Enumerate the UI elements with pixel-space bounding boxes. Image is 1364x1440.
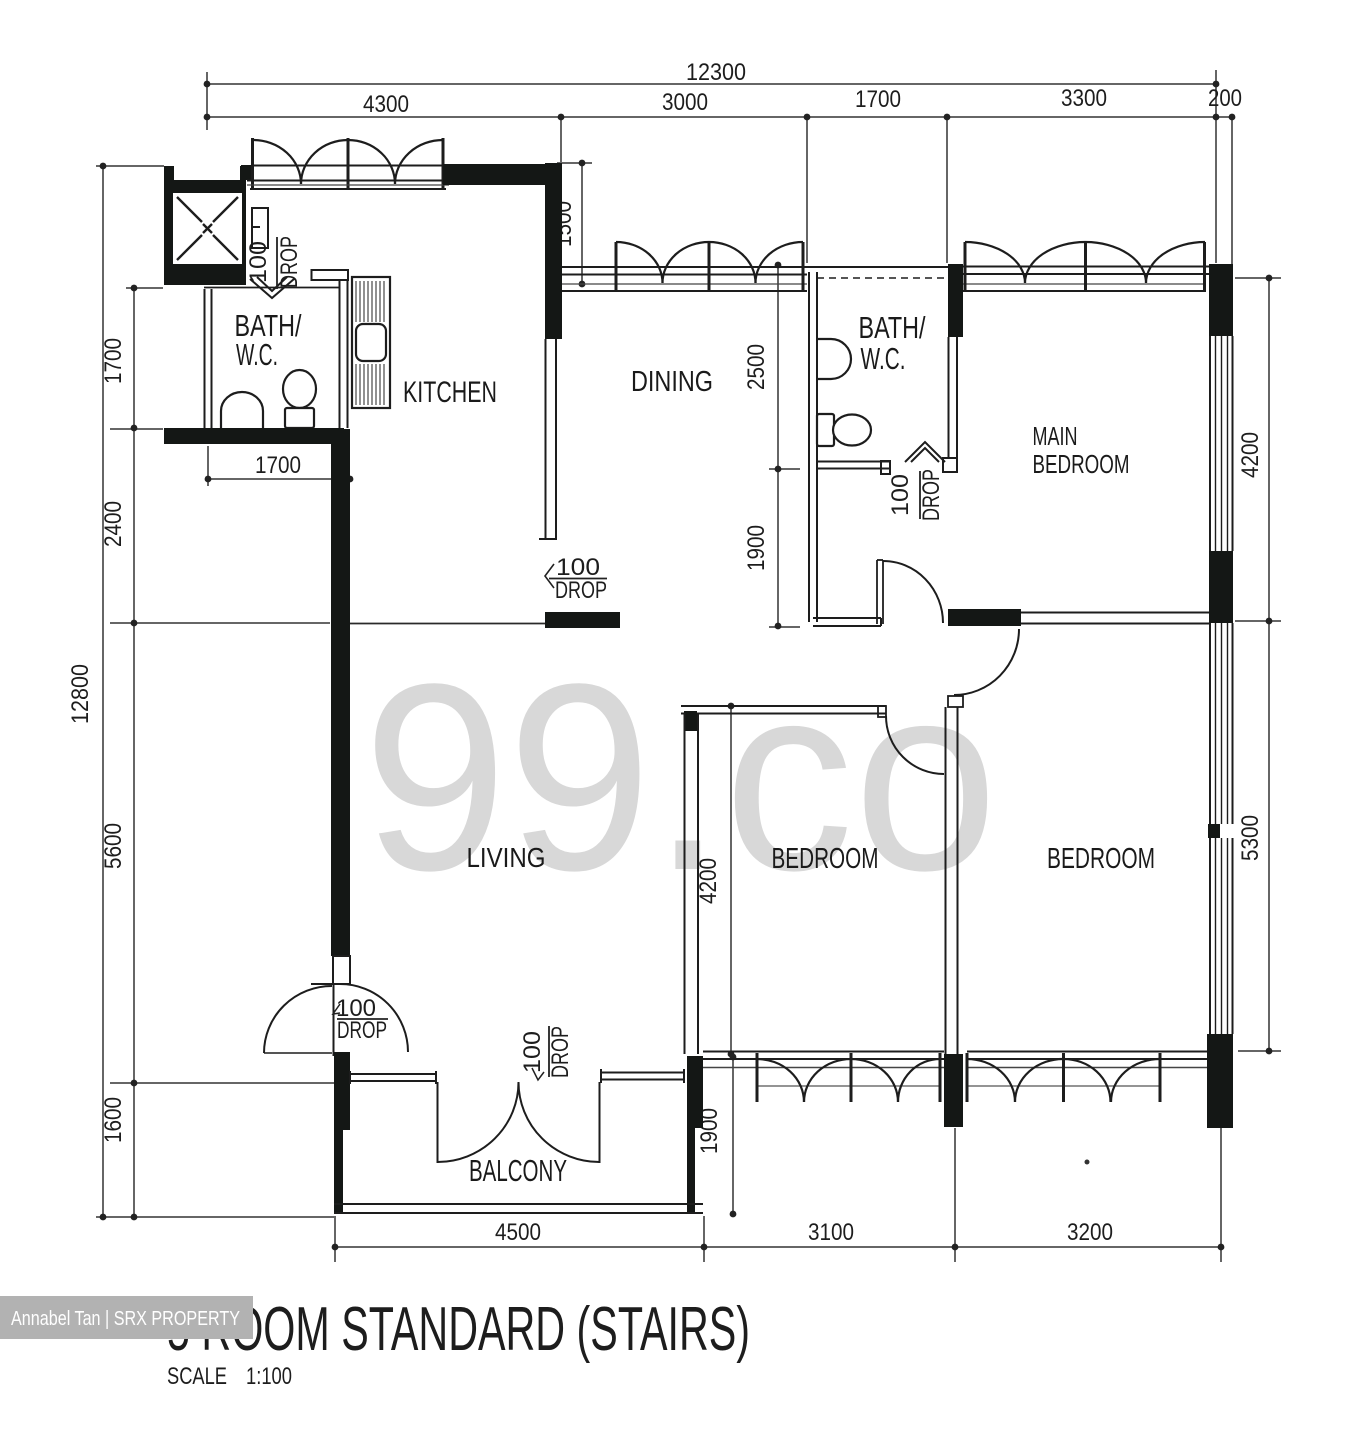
svg-text:100: 100 (887, 474, 914, 516)
svg-text:DROP: DROP (555, 577, 607, 604)
svg-text:1700: 1700 (855, 86, 901, 113)
svg-text:BEDROOM: BEDROOM (1047, 843, 1155, 875)
svg-text:99.co: 99.co (363, 629, 998, 926)
svg-text:1700: 1700 (100, 338, 127, 384)
svg-text:DROP: DROP (337, 1017, 387, 1044)
svg-text:12300: 12300 (686, 59, 746, 86)
svg-text:1600: 1600 (100, 1097, 127, 1143)
svg-text:1900: 1900 (743, 525, 770, 571)
svg-text:BATH/: BATH/ (859, 310, 926, 345)
svg-text:3200: 3200 (1067, 1219, 1113, 1246)
svg-text:BEDROOM: BEDROOM (772, 843, 879, 875)
svg-text:4300: 4300 (363, 91, 409, 118)
svg-text:SCALE: SCALE (167, 1363, 227, 1390)
svg-text:1:100: 1:100 (246, 1363, 292, 1390)
svg-text:2400: 2400 (100, 501, 127, 547)
svg-text:LIVING: LIVING (467, 842, 546, 873)
svg-text:DROP: DROP (276, 236, 303, 288)
svg-text:4200: 4200 (695, 858, 722, 904)
svg-text:12800: 12800 (67, 664, 94, 724)
svg-text:3000: 3000 (662, 89, 708, 116)
svg-text:DROP: DROP (547, 1026, 574, 1078)
svg-text:DINING: DINING (631, 366, 713, 398)
svg-text:3100: 3100 (808, 1219, 854, 1246)
svg-text:200: 200 (1208, 85, 1242, 112)
svg-text:MAIN: MAIN (1033, 421, 1078, 451)
svg-text:1700: 1700 (255, 452, 301, 479)
svg-text:100: 100 (245, 241, 272, 283)
svg-text:Annabel Tan | SRX PROPERTY: Annabel Tan | SRX PROPERTY (11, 1308, 240, 1330)
svg-text:KITCHEN: KITCHEN (403, 376, 497, 409)
svg-text:5300: 5300 (1237, 815, 1264, 861)
svg-text:W.C.: W.C. (236, 337, 278, 372)
svg-text:BALCONY: BALCONY (469, 1153, 567, 1188)
svg-text:BEDROOM: BEDROOM (1033, 449, 1130, 479)
svg-text:W.C.: W.C. (861, 341, 906, 376)
svg-text:5600: 5600 (100, 823, 127, 869)
svg-text:4500: 4500 (495, 1219, 541, 1246)
svg-text:3300: 3300 (1061, 85, 1107, 112)
svg-text:5 ROOM STANDARD (STAIRS): 5 ROOM STANDARD (STAIRS) (167, 1295, 750, 1364)
svg-text:2500: 2500 (743, 344, 770, 390)
svg-text:4200: 4200 (1237, 432, 1264, 478)
svg-text:DROP: DROP (918, 469, 945, 521)
svg-text:100: 100 (519, 1031, 546, 1073)
